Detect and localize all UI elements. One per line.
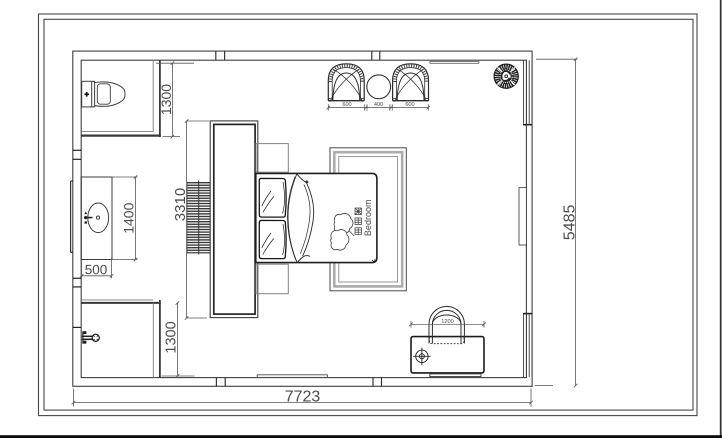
svg-text:Bedroom: Bedroom [363,200,373,237]
svg-text:3310: 3310 [172,188,189,221]
svg-text:1400: 1400 [121,202,137,233]
svg-text:600: 600 [405,102,414,108]
svg-text:7723: 7723 [285,388,321,405]
svg-text:1300: 1300 [158,84,174,115]
svg-text:5485: 5485 [562,205,579,241]
svg-text:1200: 1200 [441,319,453,325]
svg-text:400: 400 [374,102,383,108]
svg-text:1300: 1300 [164,321,180,353]
svg-text:500: 500 [85,262,108,277]
svg-text:600: 600 [342,102,351,108]
